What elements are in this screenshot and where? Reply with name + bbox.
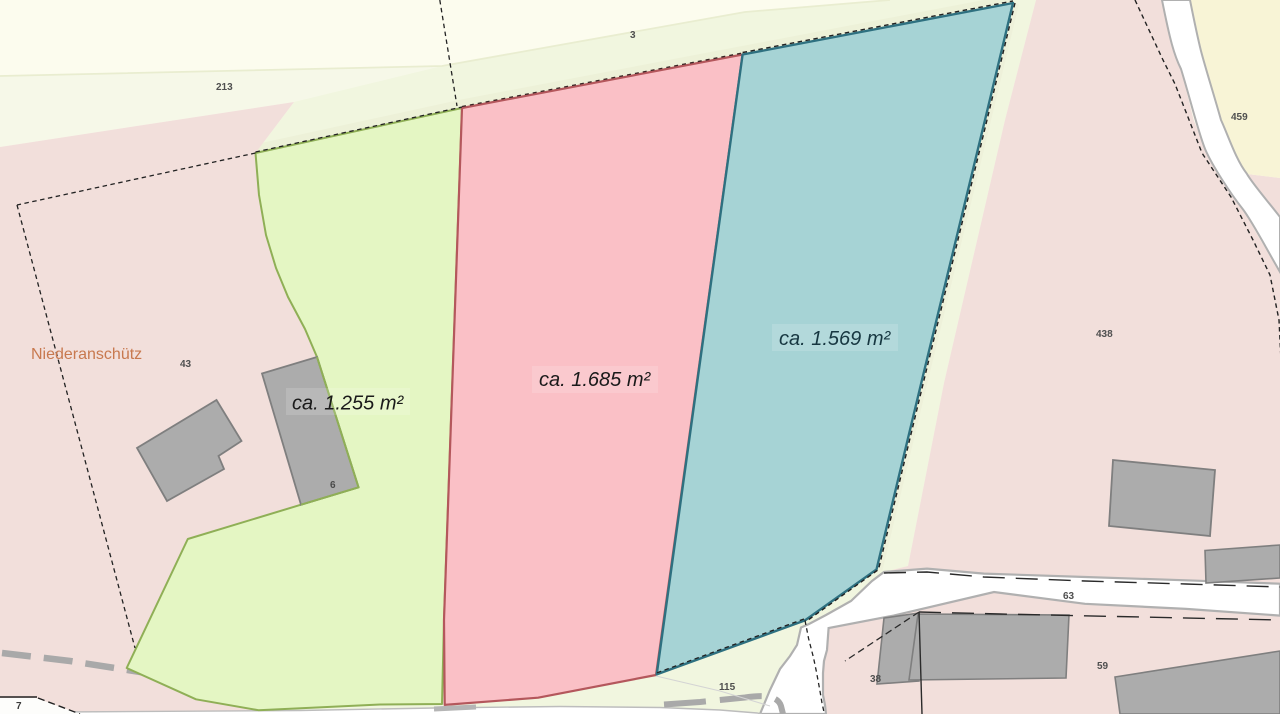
svg-text:63: 63 [1063,591,1075,602]
svg-text:59: 59 [1097,661,1109,672]
svg-text:ca. 1.685 m²: ca. 1.685 m² [539,369,652,391]
svg-text:43: 43 [180,359,192,370]
svg-text:459: 459 [1231,112,1248,123]
svg-text:115: 115 [719,682,736,693]
svg-text:6: 6 [330,480,336,491]
svg-text:Niederanschütz: Niederanschütz [31,346,142,363]
svg-text:ca. 1.569 m²: ca. 1.569 m² [779,328,892,350]
svg-text:213: 213 [216,82,233,93]
svg-text:7: 7 [16,701,22,712]
svg-text:38: 38 [870,674,882,685]
svg-text:3: 3 [630,30,636,41]
svg-text:ca. 1.255 m²: ca. 1.255 m² [292,393,405,415]
svg-text:438: 438 [1096,329,1113,340]
